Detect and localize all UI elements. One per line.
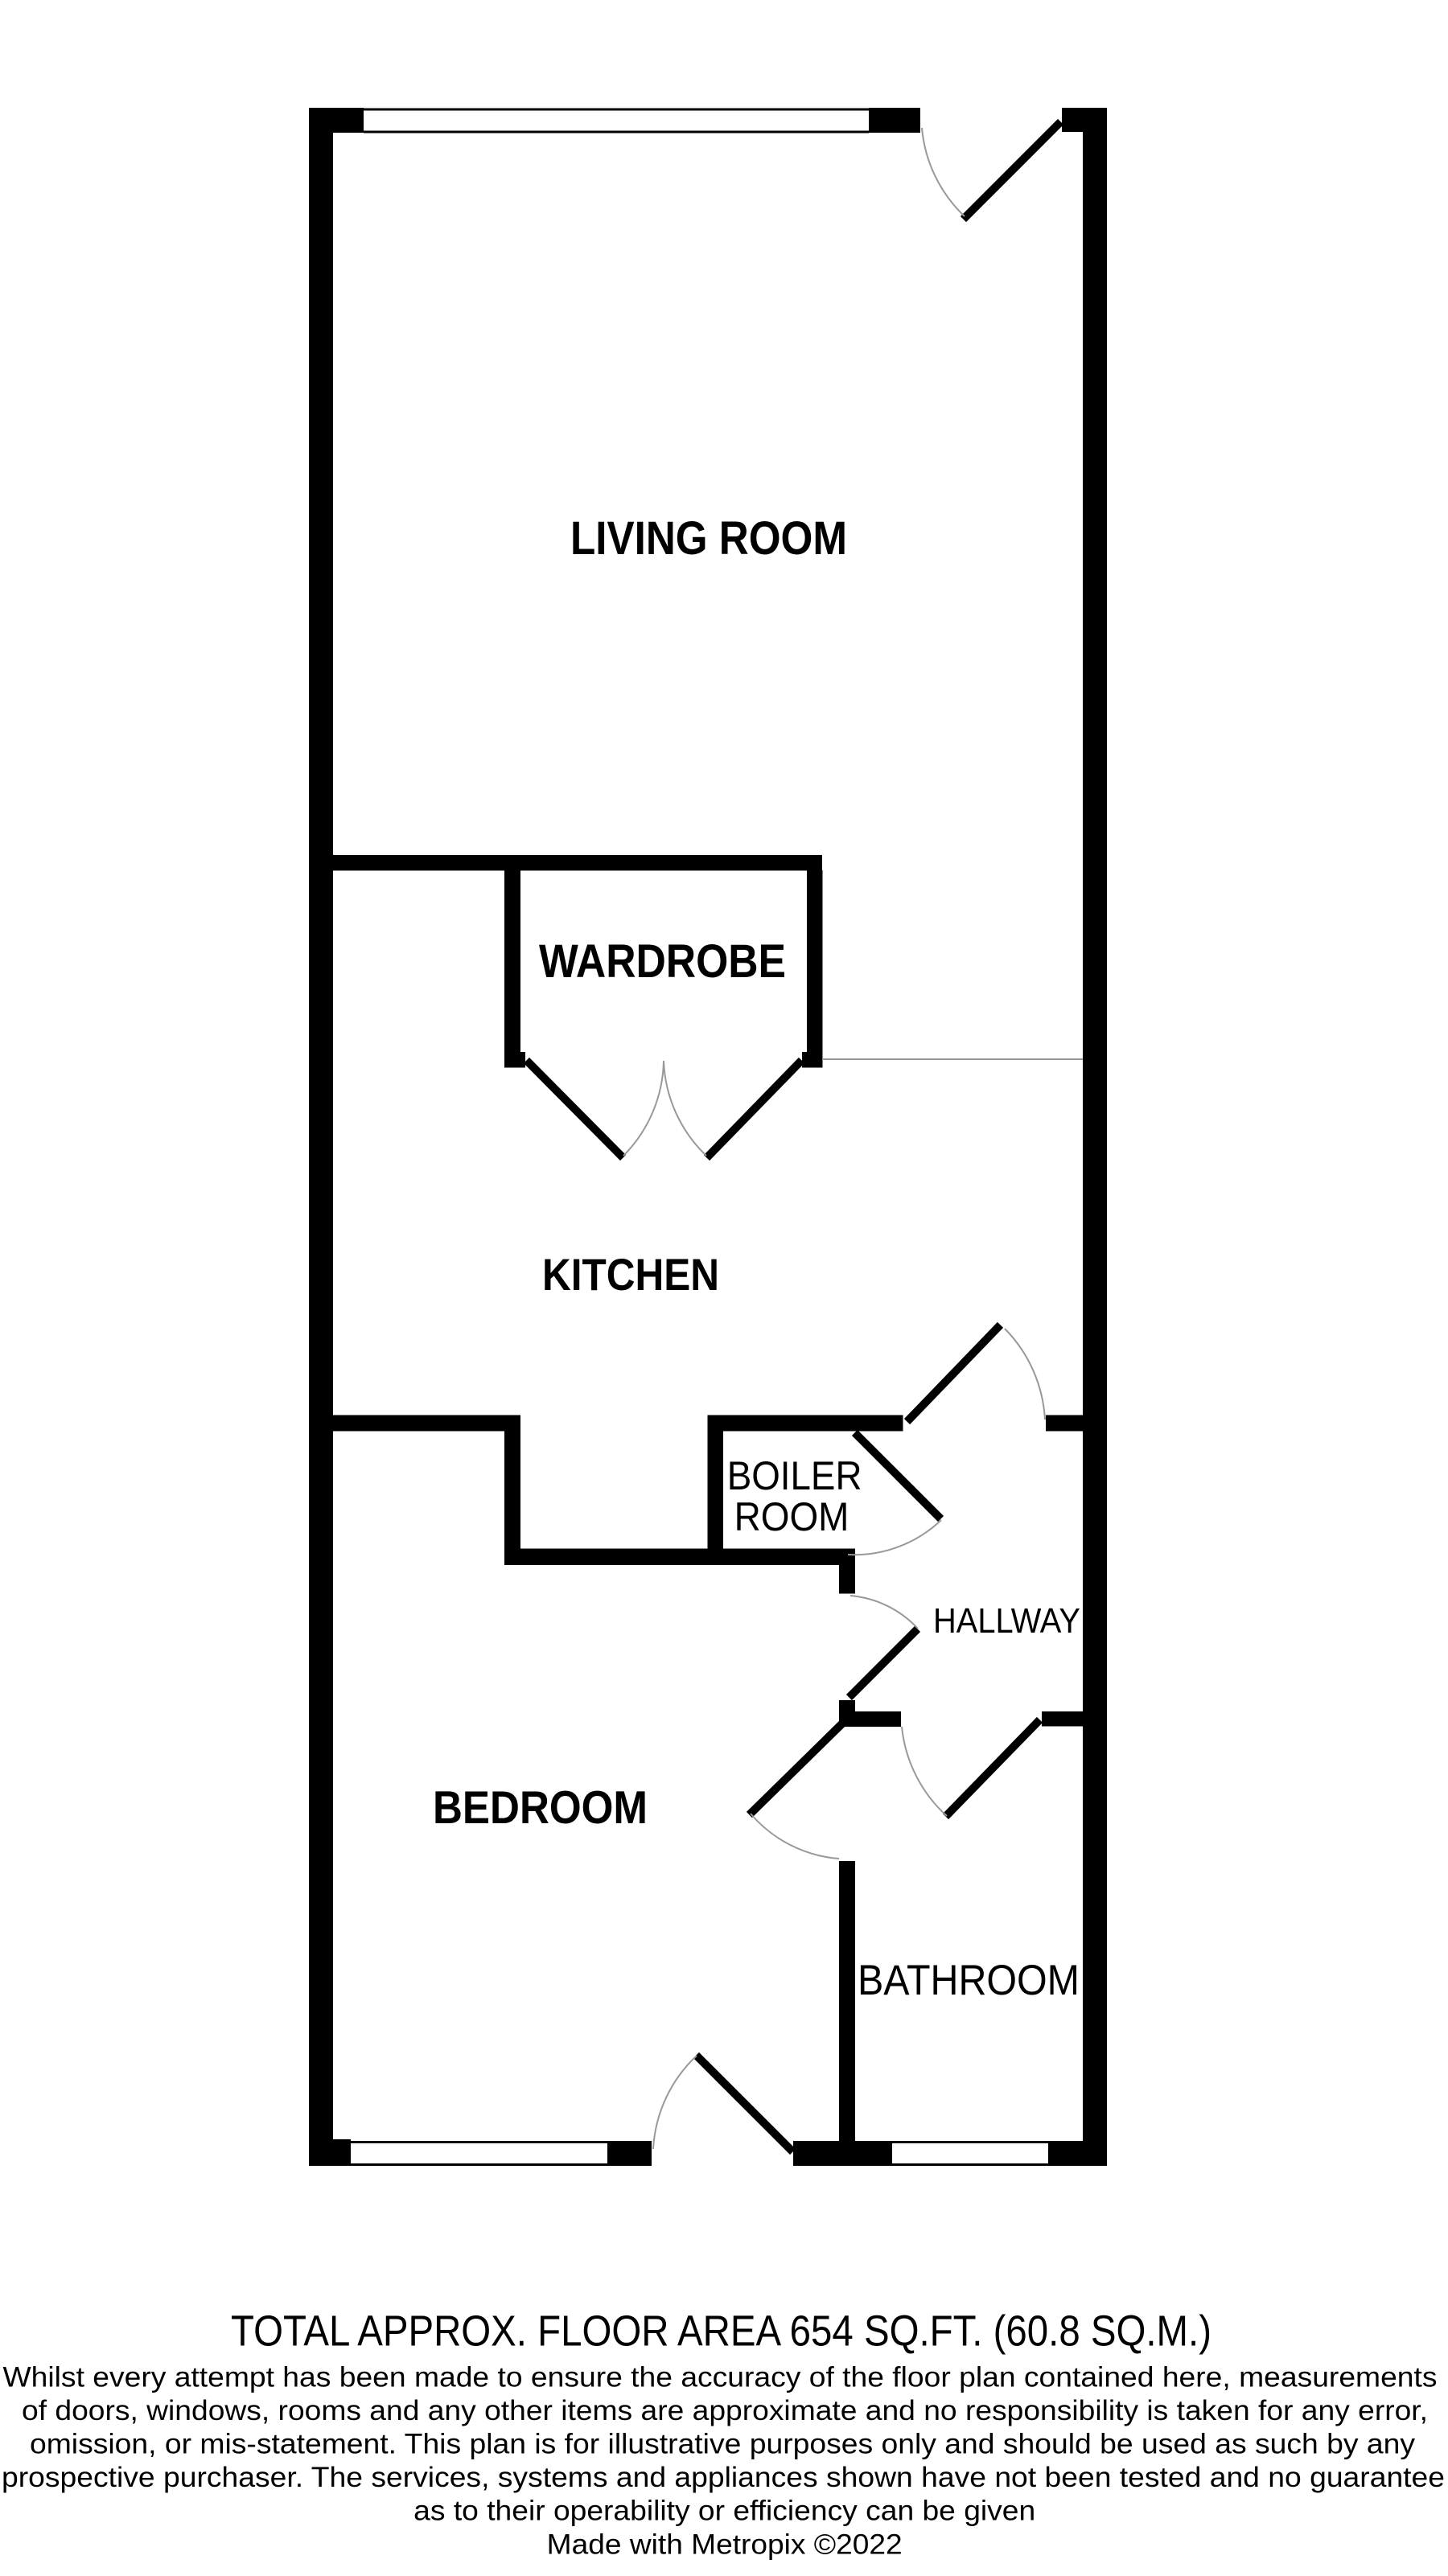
- svg-text:Made with Metropix ©2022: Made with Metropix ©2022: [547, 2529, 903, 2561]
- svg-text:prospective purchaser. The ser: prospective purchaser. The services, sys…: [2, 2462, 1445, 2493]
- svg-text:TOTAL APPROX. FLOOR AREA 654 S: TOTAL APPROX. FLOOR AREA 654 SQ.FT. (60.…: [231, 2307, 1211, 2356]
- svg-text:BEDROOM: BEDROOM: [433, 1782, 648, 1834]
- svg-text:Whilst every attempt has been: Whilst every attempt has been made to en…: [3, 2362, 1438, 2393]
- svg-text:LIVING ROOM: LIVING ROOM: [570, 512, 847, 565]
- svg-text:ROOM: ROOM: [734, 1494, 849, 1539]
- svg-text:WARDROBE: WARDROBE: [539, 935, 786, 988]
- svg-text:omission, or mis-statement. Th: omission, or mis-statement. This plan is…: [30, 2429, 1415, 2460]
- svg-text:HALLWAY: HALLWAY: [933, 1602, 1080, 1641]
- svg-text:BATHROOM: BATHROOM: [858, 1957, 1080, 2004]
- svg-text:of doors, windows, rooms and a: of doors, windows, rooms and any other i…: [22, 2395, 1428, 2426]
- svg-text:KITCHEN: KITCHEN: [542, 1250, 719, 1300]
- svg-text:BOILER: BOILER: [727, 1453, 862, 1498]
- svg-text:as to their operability or eff: as to their operability or efficiency ca…: [413, 2496, 1035, 2527]
